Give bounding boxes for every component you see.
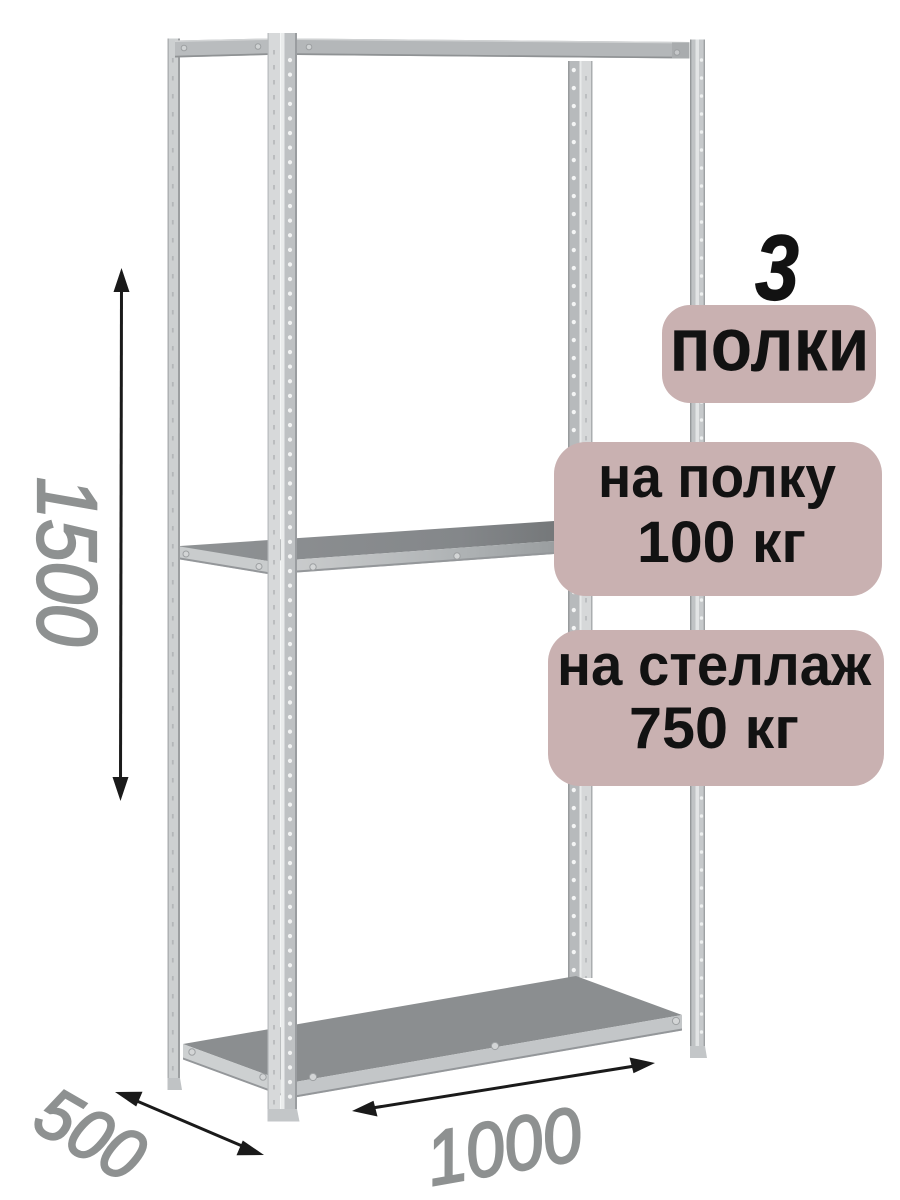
svg-text:100 кг: 100 кг bbox=[637, 510, 806, 575]
svg-text:750 кг: 750 кг bbox=[629, 696, 799, 761]
svg-text:1500: 1500 bbox=[20, 477, 114, 646]
svg-text:на стеллаж: на стеллаж bbox=[557, 633, 872, 698]
svg-text:на полку: на полку bbox=[598, 445, 836, 510]
svg-text:полки: полки bbox=[670, 303, 870, 388]
